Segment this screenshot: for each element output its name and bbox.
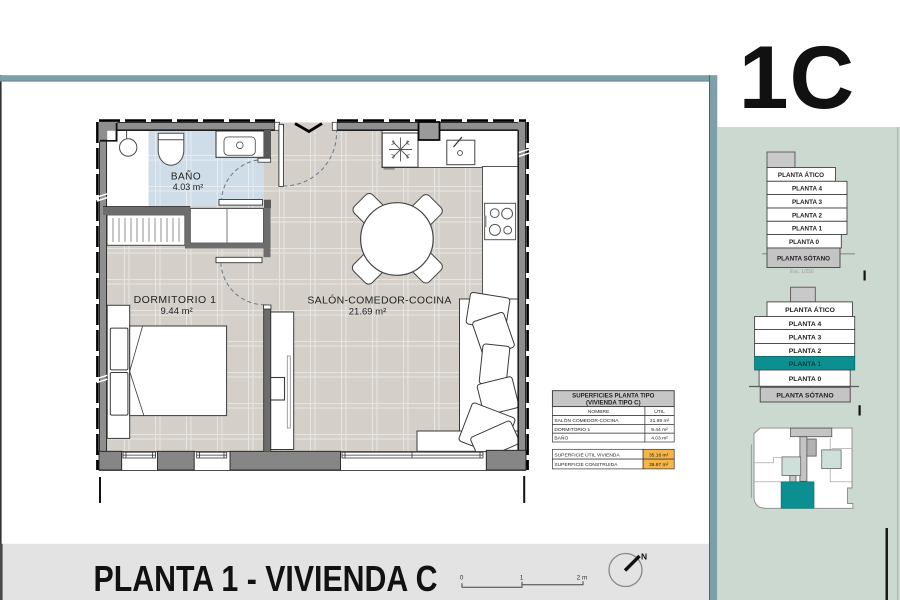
svg-text:Esc. 1/250: Esc. 1/250 bbox=[790, 269, 814, 275]
svg-text:BAÑO: BAÑO bbox=[171, 170, 201, 183]
svg-text:PLANTA 2: PLANTA 2 bbox=[792, 212, 823, 219]
svg-text:PLANTA ÁTICO: PLANTA ÁTICO bbox=[785, 305, 835, 314]
svg-text:NOMBRE: NOMBRE bbox=[588, 409, 610, 415]
svg-text:PLANTA 3: PLANTA 3 bbox=[792, 199, 823, 206]
svg-text:SUPERFICIES PLANTA TIPO: SUPERFICIES PLANTA TIPO bbox=[572, 393, 655, 400]
svg-text:21.69 m²: 21.69 m² bbox=[650, 418, 670, 424]
svg-text:PLANTA ÁTICO: PLANTA ÁTICO bbox=[778, 170, 824, 179]
svg-text:39.97 m²: 39.97 m² bbox=[649, 462, 669, 468]
svg-text:4.03 m²: 4.03 m² bbox=[173, 182, 204, 192]
svg-text:N: N bbox=[641, 552, 647, 562]
svg-text:4.03 m²: 4.03 m² bbox=[651, 436, 668, 442]
svg-text:PLANTA SÓTANO: PLANTA SÓTANO bbox=[776, 391, 833, 400]
svg-text:SALÓN COMEDOR-COCINA: SALÓN COMEDOR-COCINA bbox=[554, 417, 619, 424]
svg-text:(VIVIENDA TIPO C): (VIVIENDA TIPO C) bbox=[586, 400, 641, 407]
svg-text:SUPERFICIE ÚTIL VIVIENDA: SUPERFICIE ÚTIL VIVIENDA bbox=[554, 451, 620, 458]
svg-text:SALÓN-COMEDOR-COCINA: SALÓN-COMEDOR-COCINA bbox=[307, 294, 451, 307]
svg-text:9.44 m²: 9.44 m² bbox=[651, 427, 668, 433]
svg-text:PLANTA 2: PLANTA 2 bbox=[789, 348, 822, 355]
svg-text:DORMITORIO 1: DORMITORIO 1 bbox=[134, 294, 217, 306]
svg-text:ÚTIL: ÚTIL bbox=[654, 408, 665, 415]
svg-text:PLANTA 1: PLANTA 1 bbox=[789, 361, 822, 368]
svg-text:21.69 m²: 21.69 m² bbox=[349, 306, 387, 317]
svg-text:PLANTA SÓTANO: PLANTA SÓTANO bbox=[777, 254, 830, 263]
svg-text:35.16 m²: 35.16 m² bbox=[649, 452, 669, 458]
svg-text:0: 0 bbox=[460, 575, 464, 582]
svg-text:SUPERFICIE CONSTRUIDA: SUPERFICIE CONSTRUIDA bbox=[554, 462, 618, 468]
svg-text:PLANTA 4: PLANTA 4 bbox=[789, 321, 822, 328]
svg-text:BAÑO: BAÑO bbox=[554, 435, 568, 442]
svg-text:PLANTA 3: PLANTA 3 bbox=[789, 334, 822, 341]
svg-text:1C: 1C bbox=[739, 27, 855, 127]
svg-text:1: 1 bbox=[520, 575, 524, 582]
svg-text:PLANTA 0: PLANTA 0 bbox=[789, 376, 822, 383]
svg-text:PLANTA 0: PLANTA 0 bbox=[789, 239, 820, 246]
svg-text:9.44 m²: 9.44 m² bbox=[160, 306, 192, 317]
svg-text:2 m: 2 m bbox=[577, 575, 588, 582]
svg-text:PLANTA 1 - VIVIENDA C: PLANTA 1 - VIVIENDA C bbox=[94, 558, 438, 599]
svg-text:PLANTA 4: PLANTA 4 bbox=[792, 186, 823, 193]
svg-text:PLANTA 1: PLANTA 1 bbox=[792, 226, 823, 233]
svg-text:DORMITORIO 1: DORMITORIO 1 bbox=[554, 427, 590, 433]
